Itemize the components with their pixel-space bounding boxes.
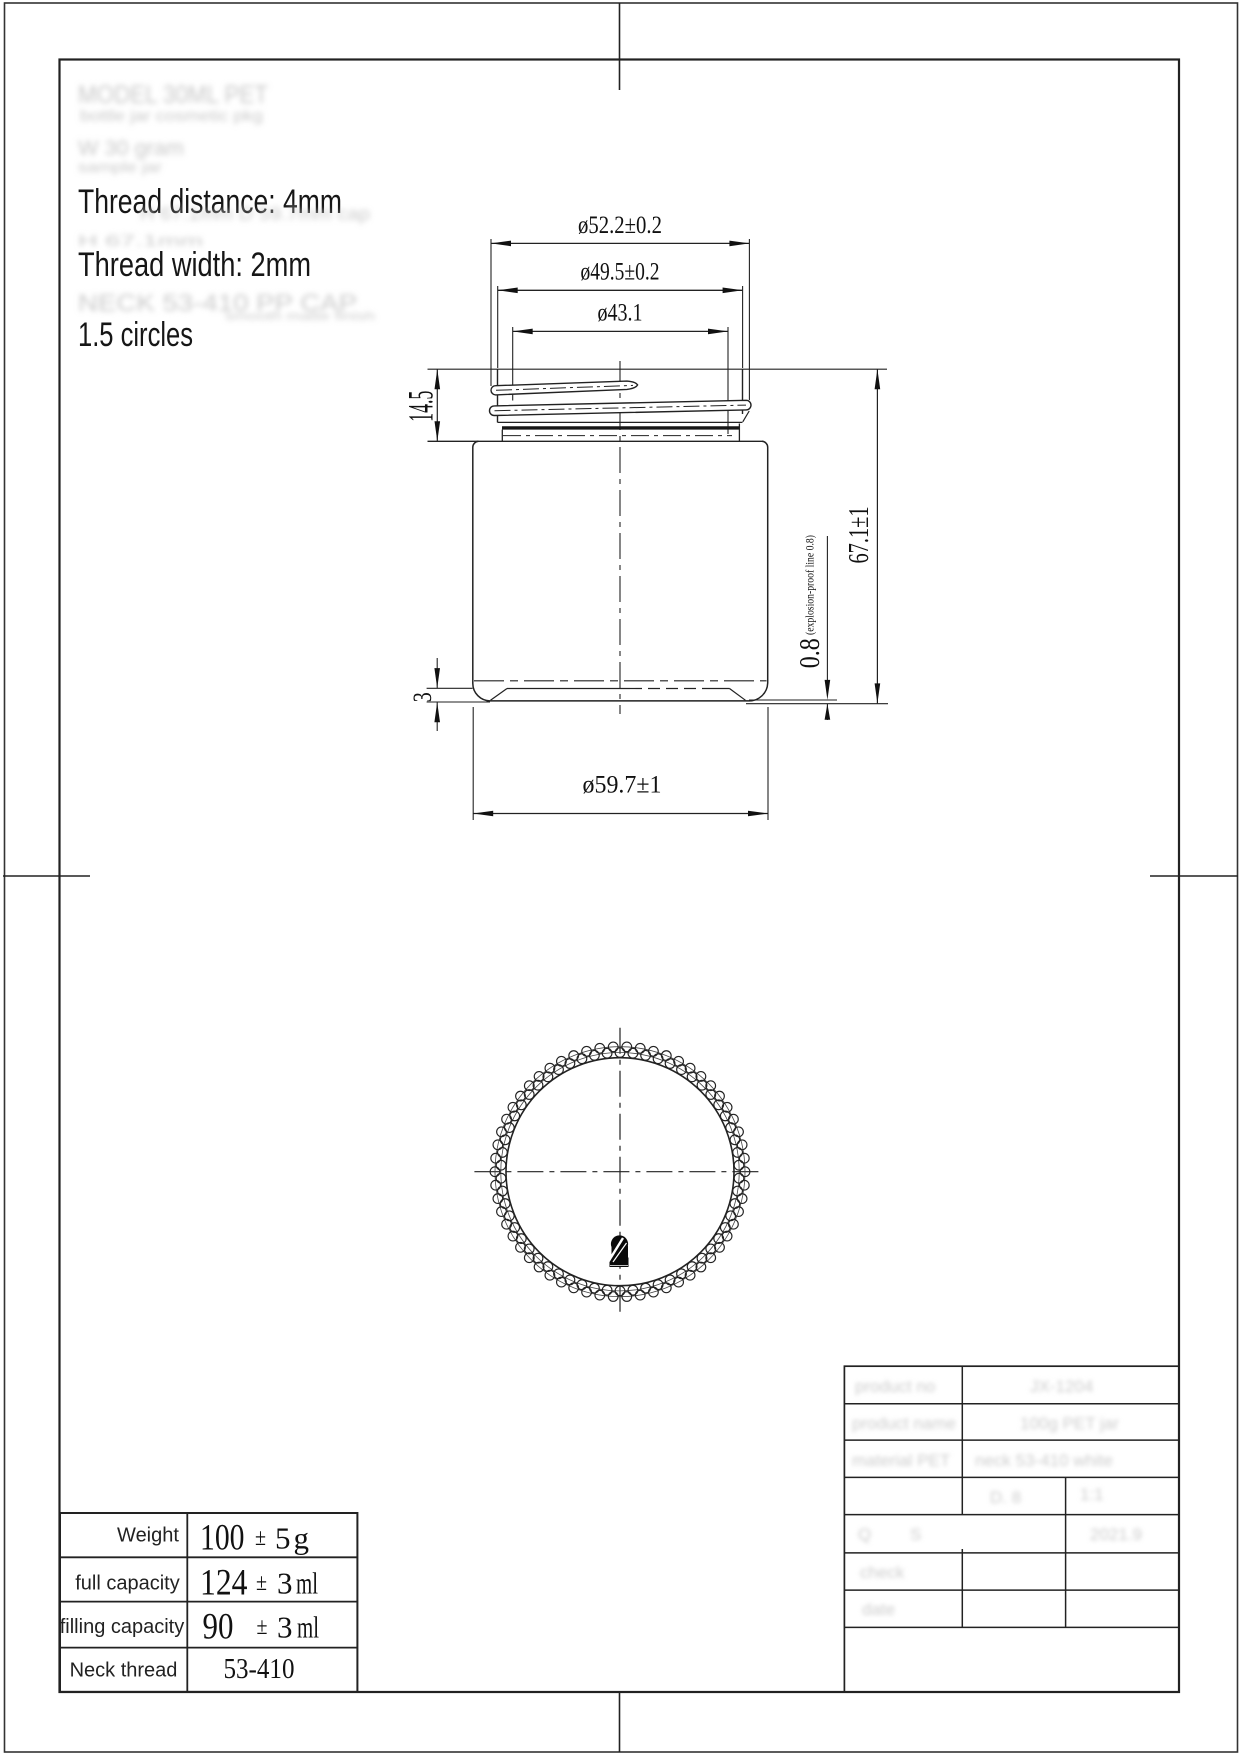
svg-text:1:1: 1:1 [1080,1485,1104,1504]
svg-text:67.1±1: 67.1±1 [843,507,875,564]
svg-text:check: check [860,1563,905,1582]
svg-text:JX-1204: JX-1204 [1030,1377,1093,1396]
svg-text:H 67.1mm D 59.7mm cap: H 67.1mm D 59.7mm cap [140,204,370,224]
svg-text:ml: ml [296,1566,318,1601]
svg-text:100: 100 [200,1517,245,1558]
svg-text:(explosion-proof line 0.8): (explosion-proof line 0.8) [805,535,817,635]
svg-text:g: g [294,1521,310,1556]
svg-text:ø49.5±0.2: ø49.5±0.2 [581,259,660,286]
svg-text:date: date [862,1600,895,1619]
svg-text:±: ± [256,1570,267,1596]
svg-text:product name: product name [852,1414,956,1433]
svg-text:bottle jar cosmetic pkg: bottle jar cosmetic pkg [80,108,263,125]
svg-text:D. 8: D. 8 [990,1488,1021,1507]
svg-text:ø59.7±1: ø59.7±1 [583,772,662,799]
svg-text:±: ± [257,1614,268,1640]
svg-text:90: 90 [203,1606,234,1647]
svg-text:14.5: 14.5 [401,391,441,422]
svg-text:neck 53-410 white: neck 53-410 white [975,1451,1113,1470]
svg-text:ml: ml [297,1610,319,1645]
svg-text:filling capacity: filling capacity [60,1616,185,1638]
svg-text:53-410: 53-410 [224,1653,295,1685]
svg-text:Thread width: 2mm: Thread width: 2mm [78,246,311,284]
svg-text:±: ± [255,1525,266,1551]
svg-text:sample jar: sample jar [78,159,162,176]
svg-text:0.8: 0.8 [795,638,826,668]
svg-text:W 30 gram: W 30 gram [78,137,184,160]
svg-text:1.5 circles: 1.5 circles [78,316,193,354]
svg-text:3: 3 [408,692,437,702]
svg-text:MODEL 30ML PET: MODEL 30ML PET [78,81,268,109]
svg-text:material PET: material PET [852,1451,950,1470]
svg-text:2021.9: 2021.9 [1090,1525,1142,1544]
svg-text:full capacity: full capacity [75,1573,180,1595]
svg-text:3: 3 [277,1610,293,1645]
svg-text:3: 3 [277,1566,293,1601]
svg-text:Neck thread: Neck thread [70,1660,178,1682]
svg-text:ø52.2±0.2: ø52.2±0.2 [578,212,662,239]
svg-text:smooth matte finish: smooth matte finish [225,309,375,323]
svg-text:ø43.1: ø43.1 [598,300,643,327]
svg-text:Q: Q [858,1525,871,1544]
svg-text:124: 124 [200,1562,248,1603]
svg-text:Weight: Weight [117,1525,179,1547]
svg-text:S: S [910,1525,921,1544]
svg-text:product no: product no [855,1377,935,1396]
svg-text:100g PET jar: 100g PET jar [1020,1414,1119,1433]
svg-text:5: 5 [275,1521,291,1556]
